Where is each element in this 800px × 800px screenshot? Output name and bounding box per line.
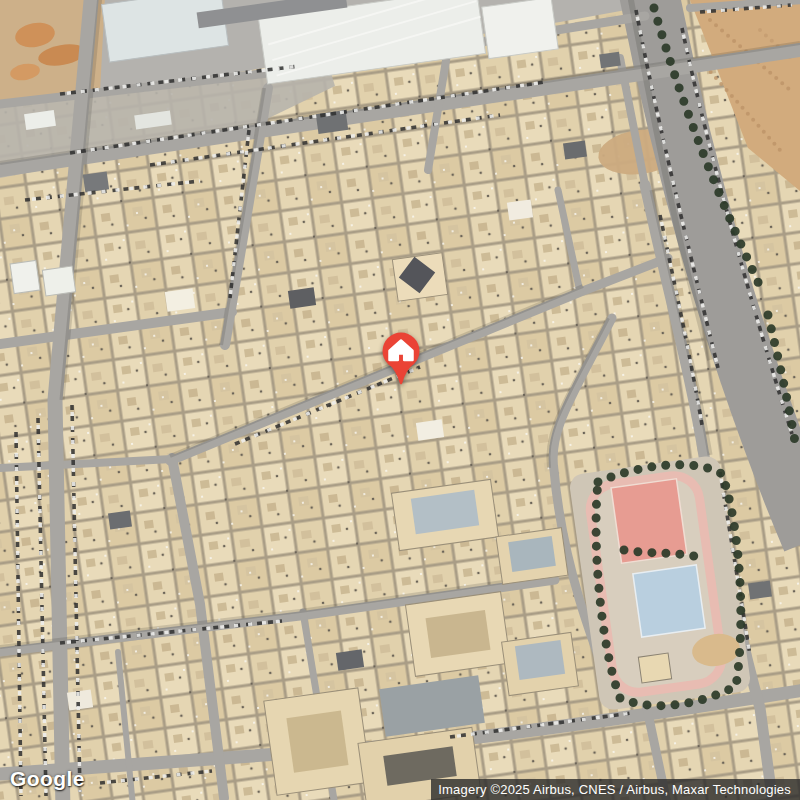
satellite-map[interactable] [0, 0, 800, 800]
mosque-building [392, 253, 447, 302]
map-viewport[interactable]: Google Imagery ©2025 Airbus, CNES / Airb… [0, 0, 800, 800]
location-pin[interactable] [373, 327, 429, 389]
google-logo[interactable]: Google [10, 767, 85, 791]
park-building [638, 653, 671, 683]
park-court-blue [633, 565, 705, 637]
imagery-attribution: Imagery ©2025 Airbus, CNES / Airbus, Max… [431, 779, 800, 800]
